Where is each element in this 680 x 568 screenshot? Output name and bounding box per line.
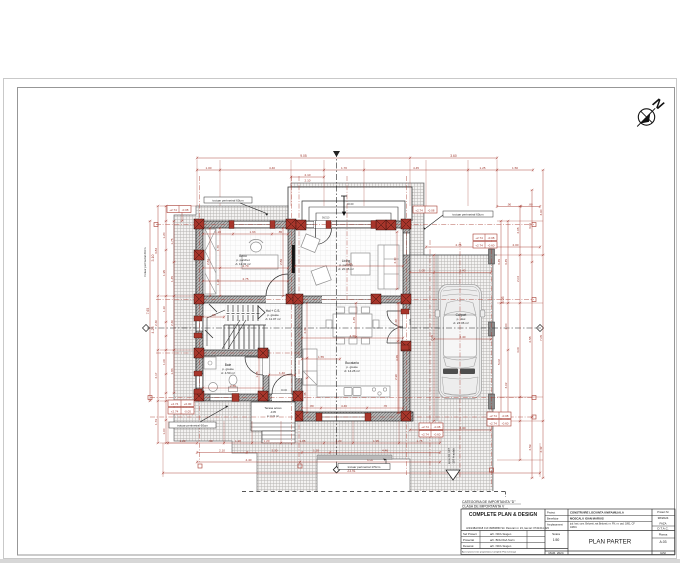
svg-text:2.90: 2.90 bbox=[394, 374, 398, 380]
svg-text:3.06: 3.06 bbox=[528, 223, 532, 229]
svg-text:-0.60: -0.60 bbox=[488, 243, 495, 247]
svg-text:Amplasament: Amplasament bbox=[547, 523, 563, 527]
svg-text:1.45: 1.45 bbox=[170, 276, 174, 282]
svg-text:Proiectat: Proiectat bbox=[463, 538, 474, 542]
svg-text:9.05: 9.05 bbox=[300, 154, 307, 158]
svg-text:1.20: 1.20 bbox=[162, 232, 166, 238]
svg-text:1.20: 1.20 bbox=[179, 439, 185, 443]
svg-text:.90: .90 bbox=[211, 313, 216, 317]
svg-text:spre DJ 107: spre DJ 107 bbox=[447, 448, 451, 465]
svg-text:1.60: 1.60 bbox=[394, 319, 398, 325]
svg-text:Proiect: Proiect bbox=[547, 511, 555, 515]
svg-text:jud. Iasi, com. Belcesti, sat: jud. Iasi, com. Belcesti, sat Belcesti, … bbox=[569, 523, 635, 526]
svg-text:3.10: 3.10 bbox=[151, 255, 155, 262]
svg-text:2.40: 2.40 bbox=[459, 426, 465, 430]
svg-text:trotuar perimetral 60cm: trotuar perimetral 60cm bbox=[452, 212, 484, 216]
svg-text:A: 3.21 m²: A: 3.21 m² bbox=[267, 414, 279, 418]
svg-text:+2.74: +2.74 bbox=[489, 421, 497, 425]
svg-text:4.25: 4.25 bbox=[151, 327, 155, 334]
svg-text:2.04: 2.04 bbox=[516, 276, 520, 282]
svg-text:arh. NICU Eugen: arh. NICU Eugen bbox=[490, 532, 512, 536]
svg-text:2.30: 2.30 bbox=[170, 320, 174, 326]
svg-text:7.05: 7.05 bbox=[430, 335, 434, 341]
svg-text:.90: .90 bbox=[507, 203, 512, 207]
svg-text:3.60: 3.60 bbox=[539, 209, 543, 215]
svg-text:CATEGORIA DE IMPORTANTA "D": CATEGORIA DE IMPORTANTA "D" bbox=[462, 500, 516, 504]
svg-text:1.20: 1.20 bbox=[263, 439, 269, 443]
svg-text:+2.74: +2.74 bbox=[421, 425, 429, 429]
svg-text:2.42: 2.42 bbox=[539, 446, 543, 452]
svg-text:1.75: 1.75 bbox=[416, 439, 422, 443]
svg-text:Scara: Scara bbox=[552, 532, 560, 536]
svg-text:1.70: 1.70 bbox=[341, 166, 347, 170]
svg-text:.70: .70 bbox=[383, 404, 388, 408]
svg-text:4.46: 4.46 bbox=[341, 404, 347, 408]
svg-text:4.65: 4.65 bbox=[395, 355, 399, 361]
svg-text:2.89: 2.89 bbox=[279, 259, 283, 265]
svg-text:2.75: 2.75 bbox=[455, 243, 461, 247]
svg-text:.80: .80 bbox=[528, 203, 533, 207]
svg-text:2.30: 2.30 bbox=[154, 320, 158, 326]
svg-text:3.45: 3.45 bbox=[497, 259, 501, 265]
svg-text:2.17: 2.17 bbox=[154, 372, 158, 378]
svg-text:Beneficiar: Beneficiar bbox=[547, 517, 559, 521]
svg-text:trotuar perimetral 60cm: trotuar perimetral 60cm bbox=[177, 423, 209, 427]
svg-text:±0.00: ±0.00 bbox=[409, 318, 412, 325]
svg-text:-0.05: -0.05 bbox=[270, 410, 276, 414]
svg-text:+2.74: +2.74 bbox=[169, 208, 177, 212]
svg-text:1.10: 1.10 bbox=[162, 306, 166, 312]
svg-text:6.58: 6.58 bbox=[528, 336, 532, 342]
svg-text:COMPLETE PLAN & DESIGN: COMPLETE PLAN & DESIGN bbox=[469, 512, 538, 518]
svg-text:MOSCALU IOAN MARIUS: MOSCALU IOAN MARIUS bbox=[570, 517, 604, 521]
svg-text:2.00: 2.00 bbox=[512, 243, 518, 247]
svg-text:+2.74: +2.74 bbox=[415, 208, 423, 212]
svg-text:+2.74: +2.74 bbox=[475, 243, 483, 247]
svg-text:2.55: 2.55 bbox=[230, 384, 236, 388]
svg-text:2.08: 2.08 bbox=[516, 227, 520, 233]
svg-text:PLAN PARTER: PLAN PARTER bbox=[589, 539, 632, 546]
svg-text:4.40: 4.40 bbox=[269, 166, 275, 170]
svg-text:-0.05: -0.05 bbox=[184, 409, 191, 413]
svg-text:1.55: 1.55 bbox=[255, 371, 259, 377]
svg-text:1.45: 1.45 bbox=[352, 317, 356, 323]
svg-text:4.00: 4.00 bbox=[516, 347, 520, 353]
svg-text:1:50: 1:50 bbox=[553, 538, 560, 542]
svg-text:MAR. 2024: MAR. 2024 bbox=[548, 551, 563, 555]
svg-text:4.90: 4.90 bbox=[346, 262, 352, 266]
svg-text:1.20: 1.20 bbox=[235, 439, 241, 443]
svg-text:+2.74: +2.74 bbox=[171, 409, 179, 413]
svg-text:+0.00: +0.00 bbox=[184, 402, 192, 406]
svg-text:2.30: 2.30 bbox=[271, 449, 277, 453]
svg-text:1.95: 1.95 bbox=[162, 270, 166, 276]
svg-text:-0.08: -0.08 bbox=[502, 414, 509, 418]
svg-text:1.55: 1.55 bbox=[318, 355, 324, 359]
svg-text:A: 4.50 m²: A: 4.50 m² bbox=[221, 371, 235, 375]
svg-text:4.45: 4.45 bbox=[413, 166, 419, 170]
svg-text:1.70: 1.70 bbox=[216, 245, 220, 251]
svg-text:3.83: 3.83 bbox=[154, 248, 158, 254]
svg-text:1.85: 1.85 bbox=[299, 439, 305, 443]
svg-text:1.20: 1.20 bbox=[335, 439, 341, 443]
svg-text:4.40: 4.40 bbox=[245, 458, 251, 462]
svg-text:2.40: 2.40 bbox=[459, 335, 465, 339]
svg-text:38/2024: 38/2024 bbox=[658, 516, 669, 520]
svg-text:A: 24.06 m²: A: 24.06 m² bbox=[453, 321, 469, 325]
svg-text:1.20: 1.20 bbox=[216, 279, 220, 285]
svg-text:Desenat: Desenat bbox=[463, 544, 474, 548]
svg-text:4.30: 4.30 bbox=[349, 334, 355, 338]
svg-text:1.40: 1.40 bbox=[279, 371, 285, 375]
svg-text:2.89: 2.89 bbox=[206, 259, 210, 265]
svg-text:1.28: 1.28 bbox=[215, 230, 221, 234]
svg-text:.80: .80 bbox=[309, 404, 314, 408]
svg-text:2.30: 2.30 bbox=[303, 327, 307, 333]
svg-text:Sef Proiect: Sef Proiect bbox=[463, 532, 477, 536]
svg-text:7.05: 7.05 bbox=[539, 335, 543, 341]
svg-text:±0.00: ±0.00 bbox=[347, 202, 354, 206]
svg-text:.90: .90 bbox=[208, 439, 213, 443]
svg-text:1.83: 1.83 bbox=[170, 368, 174, 374]
svg-text:2.10: 2.10 bbox=[304, 173, 310, 177]
svg-text:A: 11.07 m²: A: 11.07 m² bbox=[265, 317, 280, 321]
svg-text:+2.74: +2.74 bbox=[171, 402, 179, 406]
svg-text:±0.00: ±0.00 bbox=[281, 389, 288, 392]
svg-text:D.T.A.C.: D.T.A.C. bbox=[657, 527, 668, 531]
svg-text:2.70: 2.70 bbox=[242, 264, 248, 268]
svg-text:CONSTRUIRE LOCUINTA UNIFAMILIA: CONSTRUIRE LOCUINTA UNIFAMILIALA bbox=[570, 511, 624, 515]
svg-text:3.45: 3.45 bbox=[504, 259, 508, 265]
svg-text:7.65: 7.65 bbox=[146, 308, 150, 315]
svg-text:1.00: 1.00 bbox=[162, 359, 166, 365]
svg-text:CLASA DE IMPORTANTA V: CLASA DE IMPORTANTA V bbox=[462, 505, 505, 509]
svg-text:+2.74: +2.74 bbox=[489, 414, 497, 418]
svg-text:+2.74: +2.74 bbox=[475, 236, 483, 240]
svg-text:trotuar perimetral 170cm: trotuar perimetral 170cm bbox=[348, 465, 381, 469]
svg-text:FAZA: FAZA bbox=[660, 522, 667, 526]
svg-text:1.79: 1.79 bbox=[154, 419, 158, 425]
svg-text:trotuar perimetral 60cm: trotuar perimetral 60cm bbox=[212, 198, 244, 202]
svg-text:1.75: 1.75 bbox=[170, 238, 174, 244]
svg-text:1.00: 1.00 bbox=[162, 428, 166, 434]
svg-text:IASI: IASI bbox=[660, 551, 666, 555]
svg-text:2.40: 2.40 bbox=[393, 257, 397, 263]
svg-text:-0.08: -0.08 bbox=[434, 425, 441, 429]
svg-text:J22/2482/2018 CUI 39953860 S: J22/2482/2018 CUI 39953860 Str. Pacurari… bbox=[466, 526, 549, 530]
svg-text:1.50: 1.50 bbox=[512, 166, 518, 170]
svg-text:Plansa: Plansa bbox=[659, 533, 668, 537]
svg-text:2.40: 2.40 bbox=[459, 269, 465, 273]
svg-text:10801: 10801 bbox=[570, 526, 577, 529]
svg-text:arh. BOLOGA Sorin: arh. BOLOGA Sorin bbox=[490, 538, 515, 542]
svg-text:8.95: 8.95 bbox=[501, 297, 505, 304]
svg-text:Terasa acces: Terasa acces bbox=[264, 406, 282, 410]
svg-text:1.00: 1.00 bbox=[419, 269, 425, 273]
svg-text:2.10: 2.10 bbox=[304, 179, 310, 183]
svg-text:arh. NICU Eugen: arh. NICU Eugen bbox=[490, 544, 512, 548]
svg-text:4.46: 4.46 bbox=[382, 449, 388, 453]
svg-text:3.60: 3.60 bbox=[450, 154, 457, 158]
svg-text:90/210: 90/210 bbox=[322, 217, 330, 220]
svg-text:1.25: 1.25 bbox=[479, 166, 485, 170]
svg-text:1.20: 1.20 bbox=[313, 449, 319, 453]
svg-text:-0.08: -0.08 bbox=[182, 208, 189, 212]
svg-text:Proiect Nr: Proiect Nr bbox=[657, 510, 669, 514]
svg-text:A.03: A.03 bbox=[660, 540, 667, 544]
svg-text:5.02: 5.02 bbox=[497, 359, 501, 365]
svg-text:107 A asfalt: 107 A asfalt bbox=[452, 448, 456, 464]
svg-text:2.10: 2.10 bbox=[219, 449, 225, 453]
svg-text:1.00: 1.00 bbox=[205, 166, 211, 170]
svg-text:-0.60: -0.60 bbox=[502, 421, 509, 425]
svg-text:1.45: 1.45 bbox=[303, 392, 307, 398]
svg-text:A: 14.26 m²: A: 14.26 m² bbox=[344, 369, 360, 373]
svg-text:Acest proiect este proprietate: Acest proiect este proprietatea Complete… bbox=[462, 551, 517, 554]
svg-text:trotuar perimetral 60cm: trotuar perimetral 60cm bbox=[143, 247, 147, 277]
svg-text:A: 20.46 m²: A: 20.46 m² bbox=[338, 267, 354, 271]
svg-text:-0.08: -0.08 bbox=[488, 236, 495, 240]
svg-text:2.59: 2.59 bbox=[528, 444, 532, 450]
svg-text:2.00: 2.00 bbox=[504, 323, 508, 329]
svg-text:+2.74: +2.74 bbox=[421, 432, 429, 436]
svg-text:2.75: 2.75 bbox=[242, 277, 248, 281]
svg-text:3.02: 3.02 bbox=[504, 382, 508, 388]
svg-text:1.63: 1.63 bbox=[249, 230, 255, 234]
svg-text:-0.60: -0.60 bbox=[434, 432, 441, 436]
svg-text:-0.08: -0.08 bbox=[428, 208, 435, 212]
svg-text:.65: .65 bbox=[278, 230, 283, 234]
svg-text:1.95: 1.95 bbox=[373, 439, 379, 443]
